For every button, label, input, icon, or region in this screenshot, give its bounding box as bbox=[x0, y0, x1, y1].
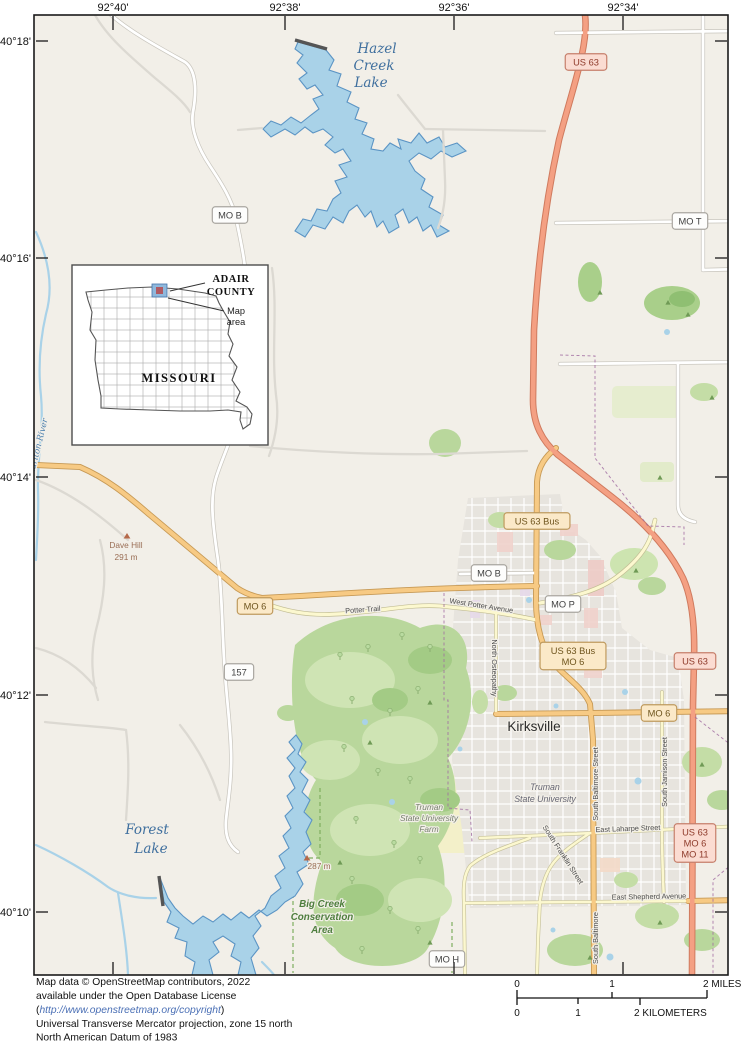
adair-county-label-1: ADAIR bbox=[213, 274, 250, 285]
kirksville-label: Kirksville bbox=[507, 719, 560, 734]
map-area-label-1: Map bbox=[227, 306, 245, 316]
missouri-label: MISSOURI bbox=[141, 371, 216, 385]
shield-157-text-0: 157 bbox=[231, 667, 247, 677]
shield-mo-p-text-0: MO P bbox=[551, 599, 575, 609]
adair-county-label-2: COUNTY bbox=[207, 287, 256, 298]
hazel-creek-lake-label-1: Hazel bbox=[356, 41, 396, 57]
road-section-line bbox=[560, 362, 742, 364]
attribution-line-5: North American Datum of 1983 bbox=[36, 1033, 178, 1044]
attribution-line-2: available under the Open Database Licens… bbox=[36, 991, 237, 1002]
shield-mo6-west-text-0: MO 6 bbox=[244, 601, 267, 611]
forest-lake-label-2: Lake bbox=[133, 841, 167, 857]
road-shepherd-east bbox=[688, 900, 742, 901]
lat-label-5: 40°10' bbox=[0, 907, 31, 919]
shield-us63-bus-mo6-text-0: US 63 Bus bbox=[551, 646, 596, 656]
shield-us63-bus: US 63 Bus bbox=[504, 513, 570, 530]
shield-mo-b-north-text-0: MO B bbox=[218, 210, 242, 220]
shield-mo-p: MO P bbox=[545, 596, 580, 613]
lon-label-3: 92°36' bbox=[439, 2, 470, 14]
east-shepherd-avenue-label: East Shepherd Avenue bbox=[612, 891, 687, 901]
osm-copyright-link[interactable]: http://www.openstreetmap.org/copyright bbox=[39, 1005, 222, 1016]
shield-us63-bus-mo6-text-1: MO 6 bbox=[562, 657, 585, 667]
scale-miles-1: 1 bbox=[609, 979, 615, 990]
shield-us63-north: US 63 bbox=[565, 54, 607, 71]
truman-farm-label-2: State University bbox=[400, 813, 459, 823]
shield-mo-h: MO H bbox=[429, 951, 464, 968]
url-paren-close: ) bbox=[221, 1005, 224, 1016]
road-mo-t bbox=[556, 221, 742, 223]
shield-mo6-east: MO 6 bbox=[641, 705, 676, 722]
scale-miles-2: 2 MILES bbox=[703, 979, 742, 990]
shield-us63-mo6-mo11-text-1: MO 6 bbox=[684, 838, 707, 848]
lat-label-2: 40°16' bbox=[0, 253, 31, 265]
lat-label-1: 40°18' bbox=[0, 36, 31, 48]
scale-bar: 0 1 2 MILES 0 1 2 KILOMETERS bbox=[514, 979, 741, 1019]
lat-label-4: 40°12' bbox=[0, 690, 31, 702]
south-baltimore-street-label-2: South Baltimore bbox=[591, 912, 600, 964]
shield-mo-t: MO T bbox=[672, 213, 707, 230]
scale-miles-0: 0 bbox=[514, 979, 520, 990]
shield-us63-mo6-mo11: US 63MO 6MO 11 bbox=[674, 824, 716, 863]
big-creek-label-2: Conservation bbox=[291, 912, 354, 923]
usgs-map-figure: US 63US 63US 63MO 6MO 11US 63 BusUS 63 B… bbox=[0, 0, 742, 1052]
forest-lake-label-1: Forest bbox=[124, 822, 169, 838]
lon-label-1: 92°40' bbox=[98, 2, 129, 14]
map-canvas: US 63US 63US 63MO 6MO 11US 63 BusUS 63 B… bbox=[0, 0, 742, 1052]
truman-farm-label-1: Truman bbox=[415, 802, 443, 812]
inset-map: ADAIR COUNTY Map area MISSOURI bbox=[72, 265, 268, 445]
shield-mo-b-city-text-0: MO B bbox=[477, 568, 501, 578]
scale-km-2: 2 KILOMETERS bbox=[634, 1008, 707, 1019]
road-ne-horizontal bbox=[703, 269, 742, 270]
shield-157: 157 bbox=[224, 664, 253, 681]
shield-mo6-west: MO 6 bbox=[237, 598, 272, 615]
shield-mo-h-text-0: MO H bbox=[435, 954, 459, 964]
shield-us63-mo6-mo11-text-2: MO 11 bbox=[681, 849, 708, 859]
hazel-creek-lake-label-2: Creek bbox=[354, 58, 395, 74]
shield-us63-east-text-0: US 63 bbox=[682, 656, 708, 666]
south-jamison-street-label: South Jamison Street bbox=[660, 737, 669, 807]
north-osteopathy-label: North Osteopathy bbox=[490, 639, 499, 697]
truman-farm-label-3: Farm bbox=[419, 824, 438, 834]
hazel-creek-lake-label-3: Lake bbox=[353, 75, 387, 91]
map-area-marker bbox=[156, 287, 163, 294]
shield-mo-b-city: MO B bbox=[471, 565, 506, 582]
attribution-line-1: Map data © OpenStreetMap contributors, 2… bbox=[36, 977, 250, 988]
big-creek-label-3: Area bbox=[310, 925, 333, 936]
lon-label-2: 92°38' bbox=[270, 2, 301, 14]
map-interior: US 63US 63US 63MO 6MO 11US 63 BusUS 63 B… bbox=[26, 14, 742, 975]
shield-us63-bus-text-0: US 63 Bus bbox=[515, 516, 560, 526]
dave-hill-label: Dave Hill bbox=[109, 540, 142, 550]
shield-mo-b-north: MO B bbox=[212, 207, 247, 224]
lon-label-4: 92°34' bbox=[608, 2, 639, 14]
attribution-line-4: Universal Transverse Mercator projection… bbox=[36, 1019, 293, 1030]
scale-km-0: 0 bbox=[514, 1008, 520, 1019]
shield-mo-t-text-0: MO T bbox=[678, 216, 701, 226]
big-creek-label-1: Big Creek bbox=[299, 899, 345, 910]
dave-hill-elevation-label: 291 m bbox=[114, 552, 137, 562]
shield-us63-east: US 63 bbox=[674, 653, 716, 670]
shield-us63-north-text-0: US 63 bbox=[573, 57, 599, 67]
truman-university-label-1: Truman bbox=[530, 782, 560, 792]
scale-km-1: 1 bbox=[575, 1008, 581, 1019]
attribution-line-3: (http://www.openstreetmap.org/copyright) bbox=[36, 1005, 224, 1016]
elevation-287-label: 287 m bbox=[307, 861, 330, 871]
south-baltimore-street-label: South Baltimore Street bbox=[591, 747, 600, 820]
truman-university-label-2: State University bbox=[514, 794, 576, 804]
shield-us63-mo6-mo11-text-0: US 63 bbox=[682, 827, 708, 837]
shield-us63-bus-mo6: US 63 BusMO 6 bbox=[540, 642, 606, 670]
map-area-label-2: area bbox=[227, 317, 246, 327]
shield-mo6-east-text-0: MO 6 bbox=[648, 708, 671, 718]
attribution-block: Map data © OpenStreetMap contributors, 2… bbox=[36, 977, 293, 1044]
lat-label-3: 40°14' bbox=[0, 472, 31, 484]
